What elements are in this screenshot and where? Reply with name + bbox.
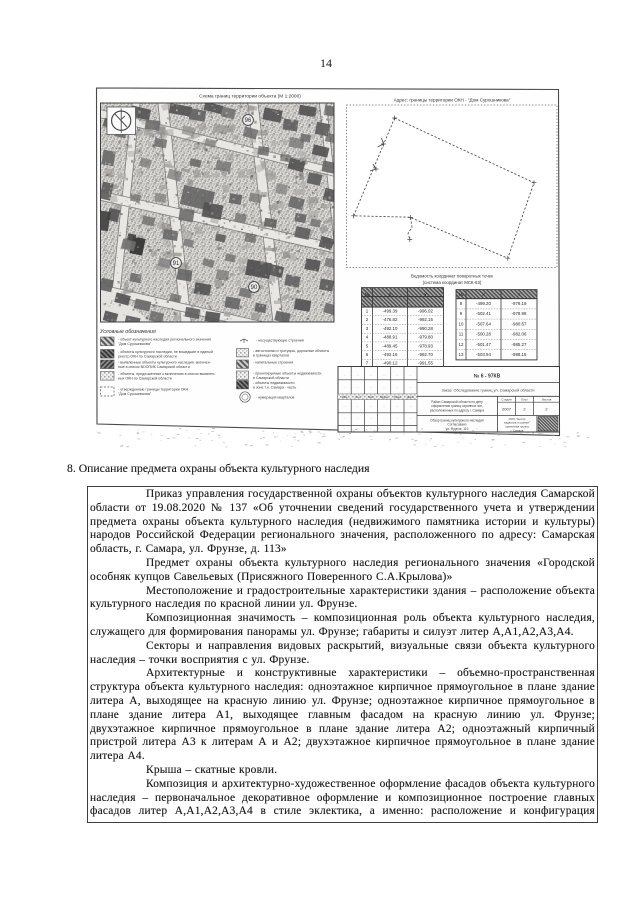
- svg-text:-489.45: -489.45: [383, 343, 398, 348]
- svg-text:-492.16: -492.16: [383, 352, 398, 357]
- svg-text:- несуществующие строения: - несуществующие строения: [256, 339, 304, 343]
- svg-text:..: ..: [357, 416, 359, 420]
- svg-text:..: ..: [370, 385, 372, 389]
- svg-text:...: ...: [409, 404, 412, 408]
- svg-text:Условные обозначения: Условные обозначения: [100, 329, 156, 335]
- svg-text:..: ..: [396, 426, 398, 430]
- svg-text:Лист: Лист: [521, 398, 528, 402]
- svg-text:..: ..: [370, 426, 372, 430]
- svg-text:"Дом Сурошникова": "Дом Сурошникова": [118, 342, 152, 346]
- svg-text:"Дом Сурошникова": "Дом Сурошникова": [118, 392, 152, 396]
- svg-text:-500.28: -500.28: [476, 332, 491, 337]
- svg-text:Кол: Кол: [355, 395, 360, 399]
- svg-text:Y: Y: [424, 292, 427, 297]
- svg-text:№: №: [459, 292, 464, 297]
- svg-text:Дата: Дата: [407, 395, 414, 399]
- svg-text:ные в список ВООПИК Самарской: ные в список ВООПИК Самарской области: [118, 365, 190, 369]
- svg-text:-503.94: -503.94: [476, 352, 491, 357]
- svg-text:-492.10: -492.10: [383, 326, 398, 331]
- svg-text:Схема границ территории объект: Схема границ территории объекта (М 1:200…: [199, 94, 301, 100]
- svg-text:91: 91: [173, 261, 180, 267]
- svg-text:-991.55: -991.55: [418, 361, 433, 366]
- svg-text:..: ..: [396, 385, 398, 389]
- svg-text:Заказ: Обследование границ ул: Заказ: Обследование границ ул. Самарской…: [441, 389, 534, 393]
- svg-text:-980.67: -980.67: [512, 321, 527, 326]
- svg-text:ул. Фрунзе, 113: ул. Фрунзе, 113: [446, 427, 469, 431]
- svg-text:..: ..: [410, 385, 412, 389]
- svg-text:-979.80: -979.80: [418, 335, 433, 340]
- svg-text:в Самарской области: в Самарской области: [253, 376, 289, 380]
- svg-text:-502.41: -502.41: [476, 311, 491, 316]
- svg-text:..: ..: [344, 416, 346, 420]
- svg-text:-988.15: -988.15: [512, 352, 527, 357]
- svg-text:...: ...: [357, 404, 360, 408]
- svg-text:- объекты культурного наследия: - объекты культурного наследия, не вошед…: [118, 350, 213, 354]
- svg-text:90: 90: [251, 285, 258, 291]
- svg-text:...: ...: [396, 404, 399, 408]
- svg-text:г. Самара: г. Самара: [511, 429, 524, 433]
- svg-text:...: ...: [383, 404, 386, 408]
- svg-text:-499.39: -499.39: [383, 309, 398, 314]
- svg-text:-979.19: -979.19: [512, 301, 527, 306]
- svg-text:..: ..: [344, 385, 346, 389]
- svg-text:-499.20: -499.20: [476, 301, 491, 306]
- svg-text:13: 13: [459, 352, 464, 357]
- svg-text:..: ..: [357, 373, 359, 377]
- svg-text:...: ...: [343, 404, 346, 408]
- svg-text:Адрес: границы территории ОКН: Адрес: границы территории ОКН - "Дом Сур…: [394, 98, 511, 103]
- svg-text:..: ..: [396, 373, 398, 377]
- svg-text:...: ...: [370, 404, 373, 408]
- svg-text:- капитальные строения: - капитальные строения: [253, 360, 293, 364]
- svg-text:- нумерация кварталов: - нумерация кварталов: [256, 396, 295, 400]
- svg-text:в границах кварталов: в границах кварталов: [253, 354, 289, 358]
- svg-text:X: X: [482, 292, 485, 297]
- svg-text:..: ..: [410, 416, 412, 420]
- svg-text:2007: 2007: [502, 407, 512, 412]
- svg-text:-992.15: -992.15: [418, 317, 433, 322]
- svg-text:Ведомость координат поворотных: Ведомость координат поворотных точек: [411, 274, 493, 279]
- svg-text:Листов: Листов: [542, 398, 552, 402]
- svg-text:96: 96: [245, 118, 252, 124]
- svg-text:№: №: [365, 292, 370, 297]
- svg-text:..: ..: [410, 426, 412, 430]
- svg-text:Y: Y: [517, 292, 520, 297]
- svg-text:..: ..: [344, 373, 346, 377]
- svg-text:..: ..: [396, 416, 398, 420]
- svg-text:Изм: Изм: [342, 395, 348, 399]
- svg-text:12: 12: [459, 342, 464, 347]
- svg-text:- утвержденные границы террито: - утвержденные границы территории ОКН: [118, 388, 189, 392]
- svg-text:-978.93: -978.93: [418, 343, 433, 348]
- svg-text:№док: №док: [380, 395, 389, 399]
- svg-text:..: ..: [357, 385, 359, 389]
- svg-text:-501.47: -501.47: [476, 342, 491, 347]
- svg-text:-490.12: -490.12: [383, 361, 398, 366]
- svg-text:в зоне т.н. Самара - часть: в зоне т.н. Самара - часть: [253, 386, 296, 390]
- svg-text:..: ..: [383, 416, 385, 420]
- svg-text:..: ..: [410, 373, 412, 377]
- svg-text:реестр ОКН по Самарской област: реестр ОКН по Самарской области: [118, 355, 177, 359]
- svg-text:- автостоянки и тротуары, доро: - автостоянки и тротуары, дорожные объек…: [253, 349, 330, 353]
- svg-text:..: ..: [344, 426, 346, 430]
- svg-text:-996.02: -996.02: [418, 309, 433, 314]
- svg-text:-982.06: -982.06: [512, 332, 527, 337]
- svg-text:(система координат МСК-63): (система координат МСК-63): [423, 280, 482, 285]
- svg-text:Стадия: Стадия: [501, 398, 512, 402]
- svg-text:-507.64: -507.64: [476, 321, 491, 326]
- svg-text:- объекты недвижимости: - объекты недвижимости: [253, 381, 294, 385]
- svg-text:ных ОКН по Самарской области: ных ОКН по Самарской области: [118, 377, 172, 381]
- svg-text:..: ..: [383, 385, 385, 389]
- svg-text:№ 6 - 97КВ: № 6 - 97КВ: [474, 373, 501, 379]
- svg-text:- выявленные объекты культурно: - выявленные объекты культурного наследи…: [118, 361, 212, 365]
- svg-text:Лист: Лист: [368, 395, 375, 399]
- svg-text:..: ..: [383, 373, 385, 377]
- svg-text:11: 11: [459, 332, 464, 337]
- svg-text:расположенных по адресу г. Сам: расположенных по адресу г. Самара: [430, 408, 484, 412]
- svg-text:-985.27: -985.27: [512, 342, 527, 347]
- svg-text:-990.28: -990.28: [418, 326, 433, 331]
- svg-text:Подп: Подп: [394, 395, 402, 399]
- svg-text:-488.91: -488.91: [383, 335, 398, 340]
- svg-text:..: ..: [383, 426, 385, 430]
- svg-text:..: ..: [370, 416, 372, 420]
- svg-text:..: ..: [370, 373, 372, 377]
- svg-text:-992.70: -992.70: [418, 352, 433, 357]
- svg-text:10: 10: [459, 321, 464, 326]
- svg-text:- проектируемые объекты недвиж: - проектируемые объекты недвижимости: [253, 371, 321, 375]
- svg-text:-476.82: -476.82: [383, 317, 398, 322]
- svg-text:- объект культурного наследия: - объект культурного наследия региональн…: [118, 338, 211, 342]
- svg-text:X: X: [388, 292, 391, 297]
- svg-text:-978.98: -978.98: [512, 311, 527, 316]
- svg-text:- объекты, предложенные к вклю: - объекты, предложенные к включению в сп…: [118, 372, 216, 376]
